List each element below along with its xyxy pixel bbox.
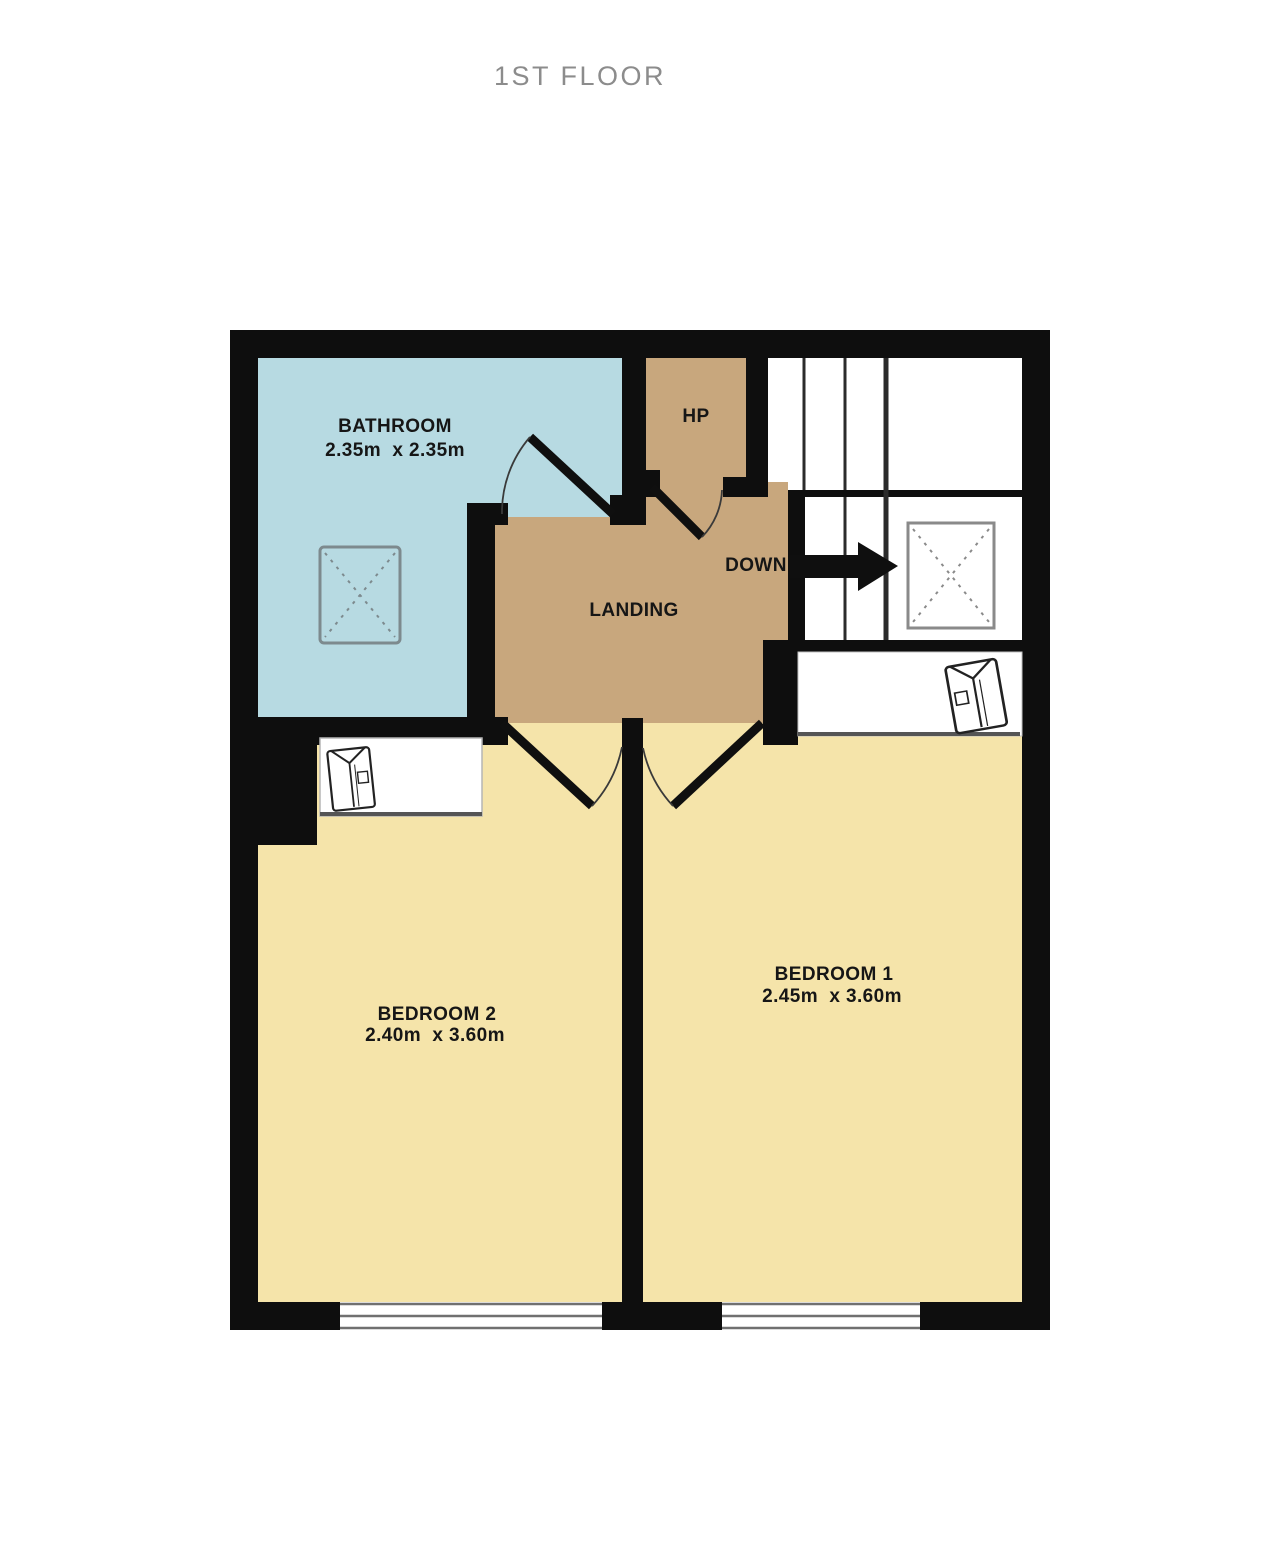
wardrobe-bedroom2 (320, 738, 482, 816)
bathroom-label: BATHROOM (338, 416, 452, 438)
wall-bedroom-divider (622, 718, 643, 1302)
stairs-down-label: DOWN (725, 555, 787, 577)
wall-hp-stairs (746, 358, 768, 482)
folded-shirt-icon (945, 659, 1007, 734)
bedroom1-label: BEDROOM 1 (775, 964, 894, 986)
shirt-pocket (357, 771, 368, 783)
wardrobe-bedroom1 (798, 652, 1022, 736)
bathroom-dimensions: 2.35m x 2.35m (325, 440, 465, 462)
wall-right (1022, 358, 1050, 1330)
wall-chunk-bedroom2-corner (258, 717, 317, 845)
bedroom2-dimensions: 2.40m x 3.60m (365, 1025, 505, 1047)
wall-landing-left (467, 503, 495, 745)
stairwell-void-box (908, 523, 994, 628)
wall-left (230, 358, 258, 1330)
floorplan-drawing (0, 0, 1280, 1564)
wall-bottom-left (230, 1302, 340, 1330)
shirt-pocket (955, 691, 969, 705)
wall-top (230, 330, 1050, 358)
wall-bathroom-door-stub-right (610, 495, 646, 525)
stairwell-void-icon (908, 523, 994, 628)
hp-label: HP (682, 406, 709, 428)
landing-label: LANDING (589, 600, 678, 622)
bedroom2-label: BEDROOM 2 (378, 1004, 497, 1026)
folded-shirt-icon (327, 747, 375, 811)
bedroom1-dimensions: 2.45m x 3.60m (762, 986, 902, 1008)
floorplan-page: 1ST FLOOR (0, 0, 1280, 1564)
wall-stairs-bottom (768, 640, 1022, 652)
wall-stair-flight-divider (788, 490, 1022, 497)
wall-bottom-middle (602, 1302, 722, 1330)
wall-landing-wardrobe (763, 640, 798, 745)
wall-bottom-right (920, 1302, 1050, 1330)
landing-region (467, 517, 788, 745)
